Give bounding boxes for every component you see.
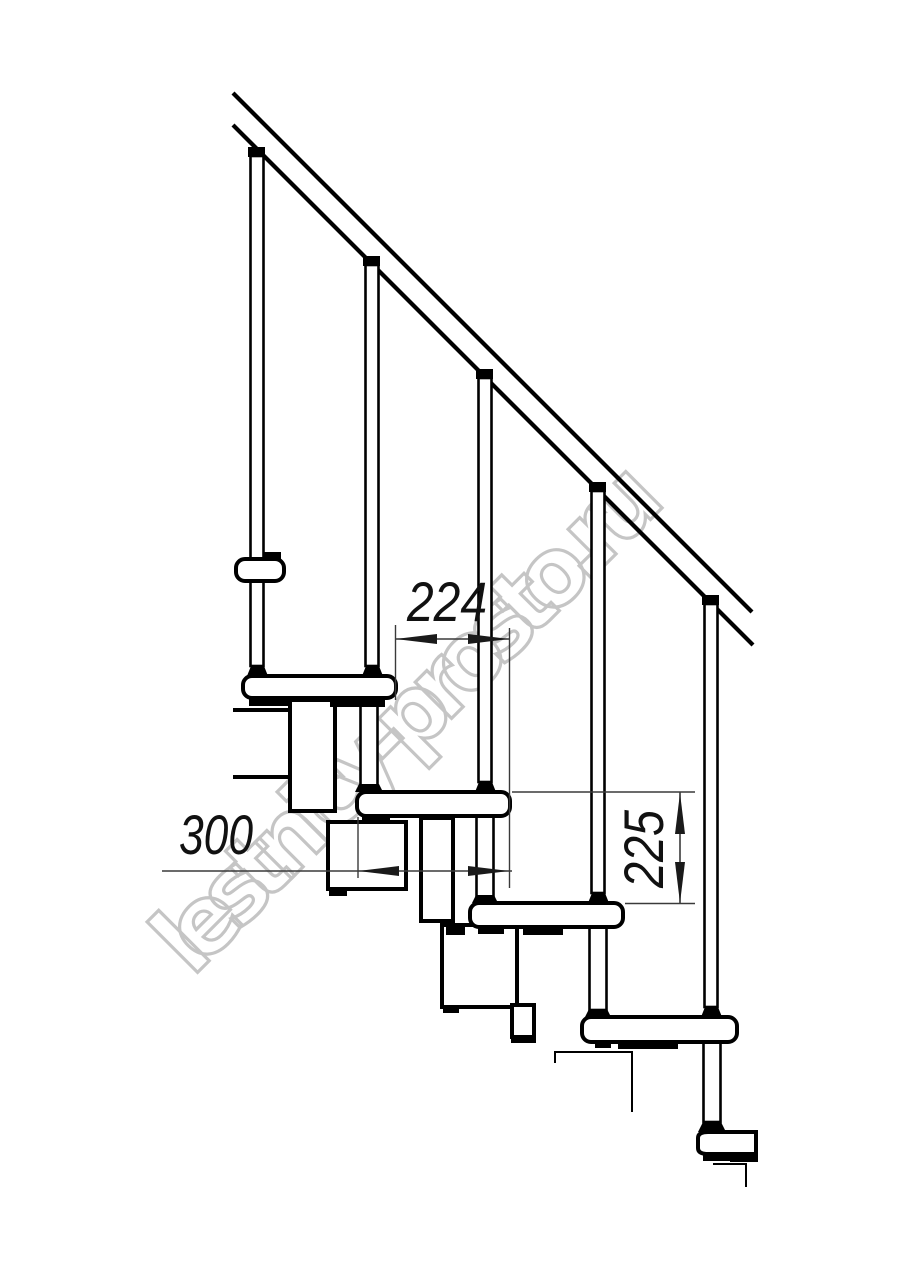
tread-5-truncated <box>698 1132 756 1154</box>
tread-3 <box>470 903 623 927</box>
module-5-continuation-outline <box>555 1052 632 1112</box>
riser-column-1 <box>361 698 378 786</box>
baluster-1 <box>251 156 264 666</box>
module-under-tread-1 <box>290 700 335 811</box>
module-4-lower-connector <box>512 1005 534 1037</box>
tread-2 <box>357 792 510 816</box>
baluster-5 <box>705 604 718 1007</box>
module-2-foot-pad-icon <box>329 889 347 896</box>
tread-4 <box>582 1017 737 1042</box>
wall-support-box <box>233 710 290 777</box>
riser-column-4 <box>704 1042 721 1122</box>
baluster-2 <box>366 265 379 666</box>
module-under-tread-2 <box>421 818 453 921</box>
tread-1 <box>243 676 396 698</box>
staircase-technical-drawing: lestnicy-prosto.ru <box>0 0 914 1280</box>
riser-column-2 <box>477 816 494 897</box>
riser-column-3 <box>590 927 607 1010</box>
dimension-value: 224 <box>406 570 487 633</box>
dimension-value: 300 <box>179 803 253 866</box>
bottom-continuation-outline <box>713 1164 746 1187</box>
bracket-body <box>236 559 284 581</box>
dimension-value: 225 <box>612 809 675 889</box>
module-4-foot-pad-icon <box>443 1007 459 1013</box>
module-4-lower-pad-icon <box>511 1037 536 1043</box>
arrow-down-icon <box>675 862 685 903</box>
baluster-4 <box>592 491 605 893</box>
arrow-up-icon <box>675 793 685 834</box>
staircase-drawing-canvas: lestnicy-prosto.ru <box>0 0 914 1280</box>
module-2-box <box>328 822 406 889</box>
module-4-box <box>442 925 517 1007</box>
module-4-top-pad-icon <box>446 927 465 935</box>
